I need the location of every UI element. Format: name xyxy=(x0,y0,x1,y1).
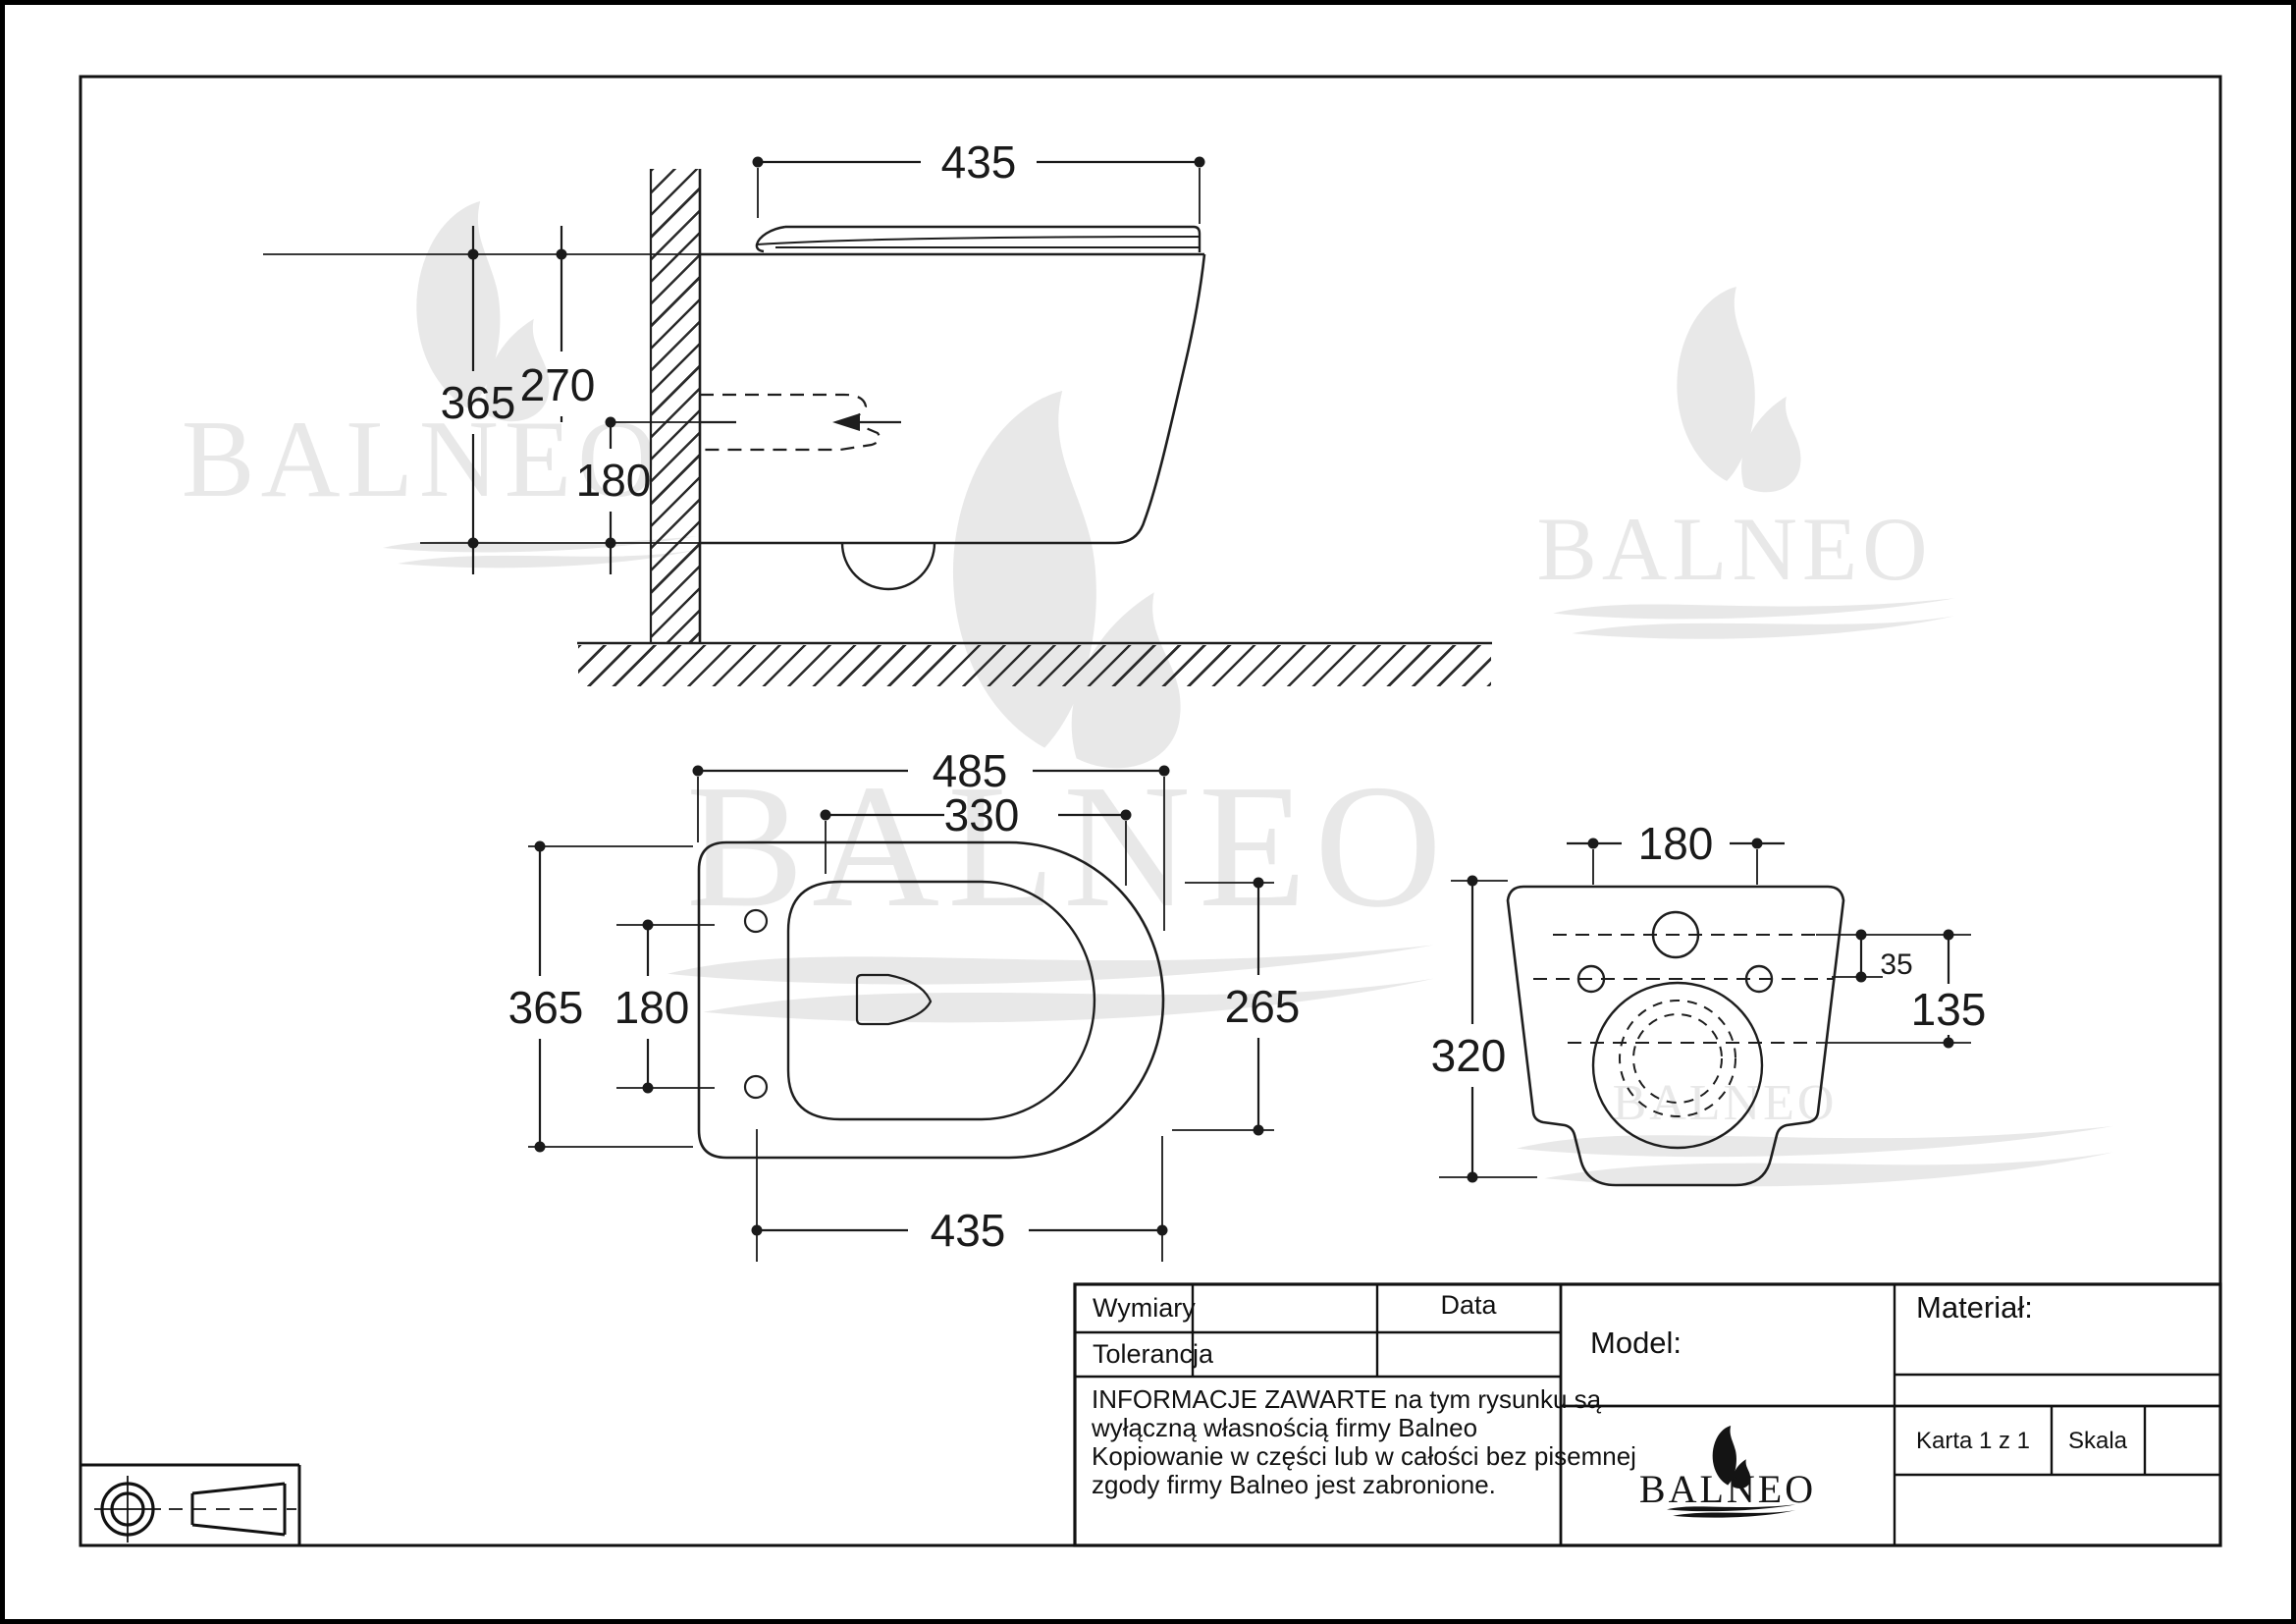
dim-rear-offset: 35 xyxy=(1880,948,1912,981)
rear-view-dimensions xyxy=(1439,843,1971,1177)
dim-rear-height-left: 320 xyxy=(1431,1030,1507,1081)
dim-plan-inner-length: 330 xyxy=(944,789,1020,840)
skala-label: Skala xyxy=(2068,1428,2128,1454)
dim-rear-height-right: 135 xyxy=(1911,984,1987,1035)
karta-label: Karta 1 z 1 xyxy=(1916,1428,2030,1454)
dim-side-outlet: 180 xyxy=(576,455,652,506)
title-block-text: Wymiary Tolerancja Data Model: Materiał:… xyxy=(1091,1290,2128,1499)
rear-view xyxy=(1508,887,1843,1185)
plan-view xyxy=(699,842,1163,1158)
dim-side-inlet: 270 xyxy=(520,359,596,410)
tolerancja-label: Tolerancja xyxy=(1093,1339,1214,1369)
projection-symbol-icon xyxy=(80,1465,299,1545)
data-label: Data xyxy=(1440,1290,1497,1320)
info-line-3: Kopiowanie w części lub w całości bez pi… xyxy=(1092,1441,1636,1471)
technical-drawing-sheet: BALNEO BALNEO BALNEO BALNEO xyxy=(0,0,2296,1624)
balneo-logo-text: BALNEO xyxy=(1639,1467,1816,1511)
material-label: Materiał: xyxy=(1916,1290,2033,1325)
dim-side-top-width: 435 xyxy=(941,136,1017,188)
inlet-arrow-icon xyxy=(832,413,860,431)
info-line-1: INFORMACJE ZAWARTE na tym rysunku są xyxy=(1092,1384,1602,1414)
drawing-layer: 435 365 270 180 485 330 365 180 265 435 … xyxy=(0,0,2296,1624)
balneo-logo: BALNEO xyxy=(1639,1426,1816,1518)
info-line-4: zgody firmy Balneo jest zabronione. xyxy=(1092,1470,1496,1499)
model-label: Model: xyxy=(1590,1326,1682,1360)
drawing-border xyxy=(80,77,2220,1545)
info-line-2: wyłączną własnością firmy Balneo xyxy=(1091,1413,1477,1442)
dim-plan-width: 365 xyxy=(508,982,584,1033)
dim-plan-hole-spacing: 180 xyxy=(614,982,690,1033)
dim-plan-right: 265 xyxy=(1225,981,1301,1032)
dim-plan-bottom: 435 xyxy=(931,1205,1006,1256)
dimension-dots xyxy=(468,157,1954,1236)
wymiary-label: Wymiary xyxy=(1093,1293,1196,1323)
dim-side-height: 365 xyxy=(441,377,516,428)
page-border xyxy=(3,3,2294,1622)
dim-rear-hole-spacing: 180 xyxy=(1638,818,1714,869)
